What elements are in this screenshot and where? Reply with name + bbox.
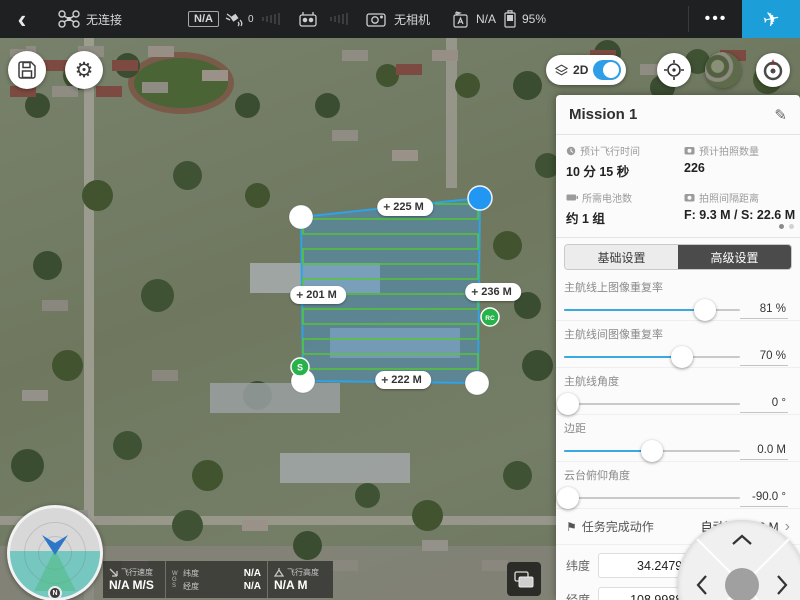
camera-status: 无相机 — [394, 0, 430, 38]
slider-side-overlap: 主航线间图像重复率 70 % — [556, 321, 800, 368]
route-angle-slider[interactable] — [564, 393, 740, 415]
drone-icon — [58, 0, 80, 38]
compass-button[interactable] — [756, 53, 790, 87]
image-transmission-icon — [452, 0, 469, 38]
camera-icon — [366, 0, 386, 38]
latitude-label: 纬度 — [183, 568, 199, 579]
wgs-label: WGS — [172, 571, 179, 589]
clock-icon — [566, 146, 576, 156]
slider-knob[interactable] — [557, 487, 579, 509]
nudge-right-button[interactable] — [776, 574, 788, 596]
slider-knob[interactable] — [694, 299, 716, 321]
stat-flight-time: 预计飞行时间 10 分 15 秒 — [566, 143, 684, 180]
settings-tabs: 基础设置 高级设置 — [564, 244, 792, 270]
slider-knob[interactable] — [557, 393, 579, 415]
speed-arrow-icon — [109, 568, 118, 577]
camera-small-icon — [684, 146, 695, 155]
margin-slider[interactable] — [564, 440, 740, 462]
speed-label: 飞行速度 — [121, 567, 153, 578]
longitude-label: 经度 — [183, 581, 199, 592]
toggle-knob — [603, 62, 619, 78]
gps-signal-bars — [262, 0, 280, 38]
overlapping-views-icon — [514, 571, 534, 588]
stat-photo-interval: 拍照间隔距离 F: 9.3 M / S: 22.6 M — [684, 190, 800, 227]
battery-icon — [504, 0, 516, 38]
gimbal-pitch-slider[interactable] — [564, 487, 740, 509]
edge-length-label-left[interactable]: +201 M — [290, 286, 346, 304]
stat-batteries: 所需电池数 约 1 组 — [566, 190, 684, 227]
ellipsis-icon: ••• — [705, 10, 728, 28]
svg-text:S: S — [297, 363, 303, 373]
mission-panel: Mission 1 ✎ 预计飞行时间 10 分 15 秒 预计拍照数量 226 … — [556, 95, 800, 600]
flag-icon: ⚑ — [566, 520, 577, 534]
crosshair-icon — [663, 59, 685, 81]
view-switch-button[interactable] — [507, 562, 541, 596]
more-menu-button[interactable]: ••• — [696, 0, 736, 38]
locate-button[interactable] — [657, 53, 691, 87]
panel-latitude-label: 纬度 — [566, 557, 598, 574]
telemetry-bar: 飞行速度 N/A M/S WGS 纬度 N/A 经度 N/A 飞行高度 N/A … — [103, 561, 333, 598]
mission-stats: 预计飞行时间 10 分 15 秒 预计拍照数量 226 所需电池数 约 1 组 … — [556, 135, 800, 238]
takeoff-button[interactable]: ✈ — [742, 0, 800, 38]
top-status-bar: ‹ 无连接 N/A 0 无 — [0, 0, 800, 38]
position-section: WGS 纬度 N/A 经度 N/A — [165, 561, 267, 598]
remote-controller-icon — [298, 0, 318, 38]
save-mission-button[interactable] — [8, 51, 46, 89]
altitude-icon — [274, 568, 284, 577]
panel-longitude-label: 经度 — [566, 591, 598, 600]
attitude-indicator[interactable]: N — [7, 505, 103, 600]
slider-margin: 边距 0.0 M — [556, 415, 800, 462]
speed-section: 飞行速度 N/A M/S — [103, 561, 165, 598]
add-waypoint-icon: + — [471, 285, 478, 299]
slider-front-overlap: 主航线上图像重复率 81 % — [556, 274, 800, 321]
stat-photo-count: 预计拍照数量 226 — [684, 143, 800, 180]
mission-header: Mission 1 ✎ — [556, 95, 800, 135]
side-overlap-value[interactable]: 70 % — [740, 348, 788, 366]
minimap-thumbnail[interactable] — [705, 52, 741, 88]
route-start-badge: S — [291, 358, 309, 376]
slider-knob[interactable] — [671, 346, 693, 368]
battery-percent: 95% — [522, 0, 546, 38]
slider-route-angle: 主航线角度 0 ° — [556, 368, 800, 415]
polygon-handle-topleft[interactable] — [289, 205, 313, 229]
polygon-handle-topright-selected[interactable] — [468, 186, 492, 210]
map-2d-toggle[interactable] — [593, 60, 621, 80]
satellite-icon — [224, 0, 244, 38]
layers-icon — [555, 63, 568, 77]
map-mode-control[interactable]: 2D — [546, 55, 626, 85]
battery-small-icon — [566, 193, 578, 202]
drone-connection-status: 无连接 — [86, 0, 122, 38]
add-waypoint-icon: + — [381, 373, 388, 387]
gps-count: 0 — [248, 0, 254, 38]
gimbal-pitch-value[interactable]: -90.0 ° — [740, 489, 788, 507]
speed-value: N/A M/S — [109, 578, 159, 592]
altitude-section: 飞行高度 N/A M — [267, 561, 333, 598]
edge-length-label-right[interactable]: +236 M — [465, 283, 521, 301]
pencil-icon: ✎ — [774, 107, 787, 124]
north-badge: N — [48, 586, 62, 600]
airplane-icon: ✈ — [760, 5, 782, 33]
flight-mode-badge: N/A — [188, 0, 219, 38]
side-overlap-slider[interactable] — [564, 346, 740, 368]
save-icon — [17, 60, 37, 80]
topbar-divider — [688, 6, 689, 32]
edge-length-label-top[interactable]: +225 M — [377, 198, 433, 216]
route-angle-value[interactable]: 0 ° — [740, 395, 788, 413]
latitude-value: N/A — [199, 568, 261, 579]
mission-title: Mission 1 — [569, 106, 637, 123]
stats-page-dots[interactable] — [779, 224, 794, 229]
rc-position-badge: RC — [481, 308, 499, 326]
app-window: ‹ 无连接 N/A 0 无 — [0, 0, 800, 600]
slider-knob[interactable] — [641, 440, 663, 462]
slider-gimbal-pitch: 云台俯仰角度 -90.0 ° — [556, 462, 800, 509]
front-overlap-slider[interactable] — [564, 299, 740, 321]
map-mode-label: 2D — [573, 63, 588, 77]
compass-icon — [761, 58, 785, 82]
edit-mission-button[interactable]: ✎ — [774, 106, 787, 124]
finish-action-label: 任务完成动作 — [582, 518, 654, 535]
add-waypoint-icon: + — [383, 200, 390, 214]
tab-advanced-settings[interactable]: 高级设置 — [678, 245, 791, 269]
altitude-label: 飞行高度 — [287, 567, 319, 578]
nudge-left-button[interactable] — [696, 574, 708, 596]
altitude-value: N/A M — [274, 578, 327, 592]
nudge-up-button[interactable] — [731, 534, 753, 546]
front-overlap-value[interactable]: 81 % — [740, 301, 788, 319]
chevron-right-icon: › — [785, 521, 790, 533]
back-icon: ‹ — [18, 4, 27, 35]
aircraft-heading-icon — [41, 535, 69, 555]
svg-text:RC: RC — [485, 315, 495, 322]
rc-signal-bars — [330, 0, 348, 38]
gear-icon: ⚙ — [75, 58, 94, 83]
tab-basic-settings[interactable]: 基础设置 — [565, 245, 678, 269]
polygon-handle-bottomright[interactable] — [465, 371, 489, 395]
mission-settings-button[interactable]: ⚙ — [65, 51, 103, 89]
back-button[interactable]: ‹ — [10, 0, 34, 38]
signal-value: N/A — [476, 0, 496, 38]
dpad-center-button[interactable] — [725, 568, 759, 600]
add-waypoint-icon: + — [296, 288, 303, 302]
edge-length-label-bottom[interactable]: +222 M — [375, 371, 431, 389]
camera-small-icon — [684, 193, 695, 202]
advanced-settings-sliders: 主航线上图像重复率 81 % 主航线间图像重复率 70 % 主航线角度 0 ° … — [556, 274, 800, 509]
margin-value[interactable]: 0.0 M — [740, 442, 788, 460]
longitude-value: N/A — [199, 581, 261, 592]
